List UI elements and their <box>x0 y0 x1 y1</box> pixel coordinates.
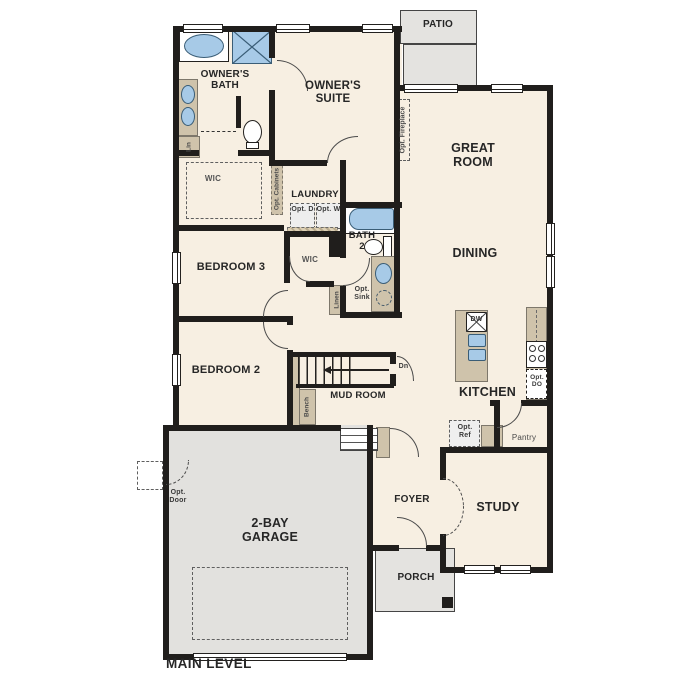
mud-room-label: MUD ROOM <box>325 391 391 402</box>
linen-label: Linen <box>334 291 341 308</box>
covered-patio-area <box>403 44 477 86</box>
wall <box>340 312 402 318</box>
floor-plan: PATIO OWNER'S BATH OWNER'S SUITE GREAT R… <box>0 0 687 687</box>
burner-icon <box>538 355 545 362</box>
opt-cabinets-label: Opt. Cabinets <box>274 168 281 210</box>
vanity-sink-2 <box>181 107 195 126</box>
pantry-label: Pantry <box>502 434 546 443</box>
window <box>183 24 223 33</box>
burner-icon <box>529 355 536 362</box>
wall <box>521 400 553 406</box>
foyer-label: FOYER <box>392 494 432 505</box>
great-room-label: GREAT ROOM <box>442 141 504 169</box>
bath2-label: BATH 2 <box>346 231 378 252</box>
patio-label: PATIO <box>406 19 470 30</box>
porch-column <box>442 597 453 608</box>
owners-bath-label: OWNER'S BATH <box>196 69 254 91</box>
window <box>546 256 555 288</box>
burner-icon <box>529 345 536 352</box>
wall <box>163 425 341 431</box>
wall <box>269 26 275 58</box>
window <box>464 565 495 574</box>
owners-suite-label: OWNER'S SUITE <box>301 80 365 106</box>
wall <box>367 425 373 660</box>
wall <box>440 567 553 573</box>
window <box>546 223 555 255</box>
bath2-toilet-tank <box>383 236 392 257</box>
window <box>172 252 181 284</box>
island-sink-1 <box>468 334 486 347</box>
wall <box>446 447 553 453</box>
garage-door-zone <box>192 567 348 640</box>
wall <box>373 545 399 551</box>
bedroom3-label: BEDROOM 3 <box>189 261 273 273</box>
wall <box>236 96 241 128</box>
wall <box>306 281 334 287</box>
dn-label: Dn <box>396 363 411 371</box>
wall <box>390 374 396 386</box>
opt-door-box <box>137 461 163 490</box>
window <box>172 354 181 386</box>
bench-label: Bench <box>304 397 311 417</box>
shower-glass-icon <box>232 30 272 64</box>
wall <box>287 350 293 431</box>
wall <box>340 286 346 312</box>
window <box>276 24 310 33</box>
opt-ref-label: Opt. Ref <box>452 424 478 440</box>
lin-label: Lin <box>186 142 193 152</box>
wall <box>440 534 446 573</box>
toilet-owner-bowl <box>243 120 262 144</box>
island-sink-2 <box>468 349 486 361</box>
burner-icon <box>538 345 545 352</box>
opt-do-label: Opt. DO <box>527 374 547 389</box>
porch-label: PORCH <box>394 572 438 583</box>
study-label: STUDY <box>470 500 526 514</box>
wic-opening-dashed <box>201 131 236 132</box>
window <box>491 84 523 93</box>
dw-label: DW <box>468 316 485 324</box>
wall <box>269 160 327 166</box>
wall <box>340 160 346 208</box>
garage-label: 2-BAY GARAGE <box>233 516 307 544</box>
wall <box>547 85 553 573</box>
opt-sink-label: Opt. Sink <box>350 286 374 302</box>
wall <box>394 162 400 318</box>
window <box>500 565 531 574</box>
stairs-arrow-head <box>323 366 331 374</box>
stairs-arrow <box>331 369 389 371</box>
opt-fireplace-label: Opt. Fireplace <box>400 107 407 154</box>
main-level-title: MAIN LEVEL <box>166 656 286 671</box>
coat-closet <box>376 427 390 458</box>
bath2-tub-basin <box>349 208 394 230</box>
wall <box>340 202 402 208</box>
bathtub-basin <box>184 34 224 58</box>
kitchen-label: KITCHEN <box>459 385 513 399</box>
dining-label: DINING <box>451 246 499 260</box>
wic-hall-label: WIC <box>296 256 324 265</box>
laundry-label: LAUNDRY <box>287 190 343 201</box>
sliding-door <box>404 84 458 93</box>
opt-d-label: Opt. D <box>290 206 315 214</box>
wic-owner-label: WIC <box>199 175 227 184</box>
wall <box>238 150 275 156</box>
opt-door-label: Opt. Door <box>165 489 191 505</box>
wic-shelving <box>186 162 262 219</box>
bath2-sink <box>375 263 392 284</box>
wall <box>296 384 394 388</box>
opt-sink-circle <box>376 290 392 306</box>
window <box>362 24 393 33</box>
toilet-owner-base <box>246 142 259 149</box>
wall <box>173 225 284 231</box>
vanity-sink-1 <box>181 85 195 104</box>
bedroom2-label: BEDROOM 2 <box>184 364 268 376</box>
opt-w-label: Opt. W <box>316 206 341 214</box>
